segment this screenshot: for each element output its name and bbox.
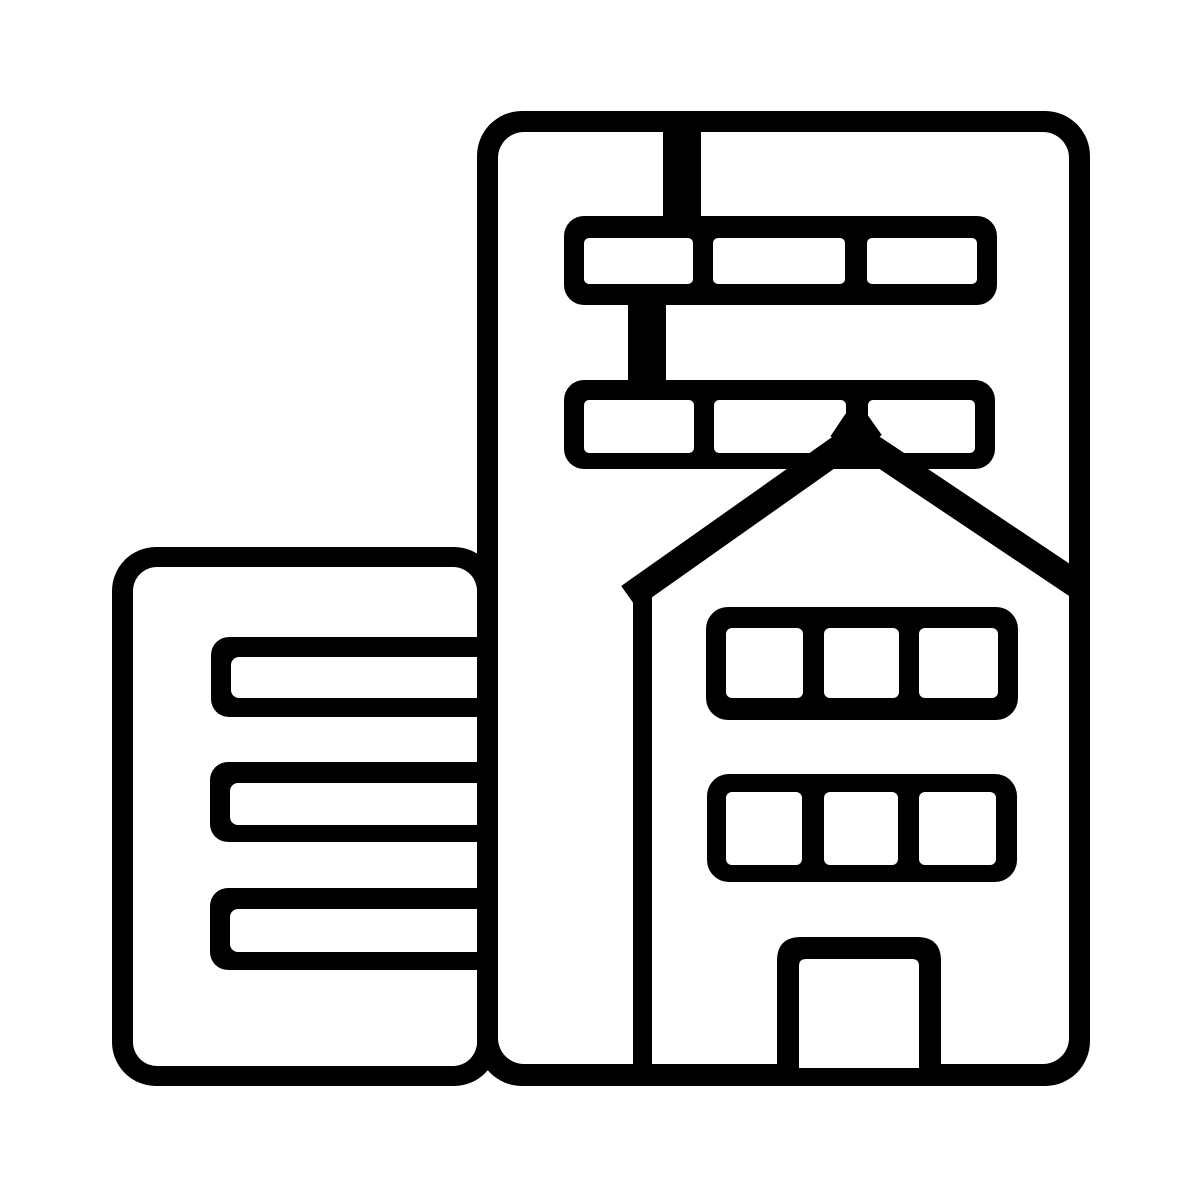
window-pane (726, 792, 802, 865)
tower-window-strip (564, 380, 995, 469)
window-pane (584, 400, 694, 453)
tall-building (477, 111, 1090, 1086)
window-pane (919, 792, 996, 865)
window-connector (663, 130, 701, 218)
buildings-icon (0, 0, 1200, 1198)
house-window-strip (706, 607, 1018, 720)
left-building (112, 547, 498, 1086)
icon-canvas (0, 0, 1200, 1198)
door-opening (799, 959, 919, 1068)
tower-window-strip (564, 216, 997, 305)
window-bar-pane (230, 783, 486, 825)
door (777, 937, 941, 1086)
window-pane (726, 628, 803, 698)
window-pane (867, 238, 977, 284)
house-window-strip (707, 774, 1017, 882)
window-bar-pane (231, 657, 486, 698)
window-bar-pane (230, 909, 486, 952)
window-pane (713, 238, 845, 284)
house-left-wall (633, 590, 652, 1086)
left-building-window-bar (211, 637, 498, 717)
window-pane (584, 238, 693, 284)
left-building-window-bar (210, 888, 498, 970)
window-pane (824, 792, 898, 865)
window-pane (919, 628, 998, 698)
left-building-window-bar (210, 762, 498, 842)
window-connector (628, 303, 666, 382)
window-pane (824, 628, 899, 698)
